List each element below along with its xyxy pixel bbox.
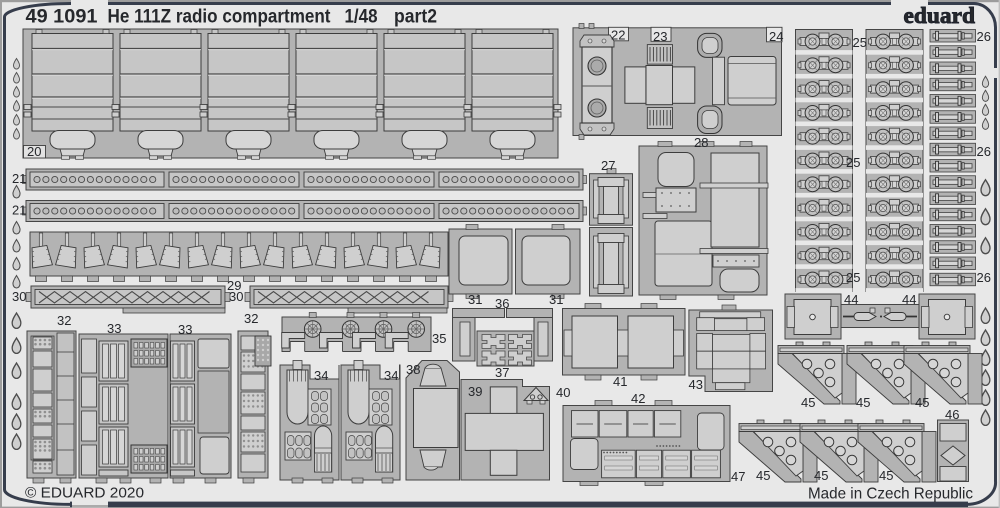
svg-text:30: 30: [229, 289, 243, 304]
svg-text:32: 32: [244, 311, 258, 326]
svg-text:43: 43: [689, 377, 703, 392]
svg-text:21: 21: [12, 171, 26, 186]
svg-text:27: 27: [601, 158, 615, 173]
svg-text:23: 23: [653, 29, 667, 44]
svg-text:1/48: 1/48: [345, 7, 378, 28]
svg-text:45: 45: [801, 395, 815, 410]
svg-text:Made in Czech Republic: Made in Czech Republic: [808, 486, 973, 503]
svg-text:45: 45: [814, 468, 828, 483]
svg-text:© EDUARD 2020: © EDUARD 2020: [25, 486, 144, 502]
svg-text:25: 25: [846, 270, 860, 285]
svg-text:31: 31: [549, 292, 563, 307]
svg-text:36: 36: [495, 296, 509, 311]
svg-text:49 1091: 49 1091: [26, 7, 98, 28]
svg-text:25: 25: [853, 35, 867, 50]
svg-text:45: 45: [915, 395, 929, 410]
svg-text:32: 32: [57, 313, 71, 328]
svg-text:He 111Z radio compartment: He 111Z radio compartment: [108, 7, 332, 28]
svg-text:26: 26: [977, 29, 991, 44]
svg-text:22: 22: [611, 28, 625, 43]
svg-text:45: 45: [879, 468, 893, 483]
svg-text:42: 42: [631, 391, 645, 406]
svg-text:44: 44: [902, 292, 916, 307]
svg-text:45: 45: [756, 468, 770, 483]
svg-text:34: 34: [384, 368, 398, 383]
svg-text:33: 33: [107, 321, 121, 336]
svg-text:24: 24: [769, 29, 783, 44]
svg-text:41: 41: [613, 374, 627, 389]
svg-text:33: 33: [178, 322, 192, 337]
svg-text:25: 25: [846, 155, 860, 170]
svg-text:21: 21: [12, 203, 26, 218]
svg-text:40: 40: [556, 385, 570, 400]
svg-text:part2: part2: [394, 7, 437, 28]
svg-text:39: 39: [468, 384, 482, 399]
svg-text:30: 30: [12, 289, 26, 304]
svg-text:45: 45: [856, 395, 870, 410]
svg-text:44: 44: [844, 292, 858, 307]
svg-text:47: 47: [731, 469, 745, 484]
svg-text:46: 46: [945, 407, 959, 422]
svg-text:38: 38: [406, 362, 420, 377]
svg-text:20: 20: [27, 144, 41, 159]
svg-text:31: 31: [468, 292, 482, 307]
svg-text:34: 34: [314, 368, 328, 383]
svg-text:26: 26: [977, 270, 991, 285]
svg-text:eduard: eduard: [904, 3, 976, 28]
svg-text:35: 35: [432, 331, 446, 346]
svg-text:28: 28: [694, 135, 708, 150]
svg-text:26: 26: [977, 144, 991, 159]
svg-text:37: 37: [495, 365, 509, 380]
